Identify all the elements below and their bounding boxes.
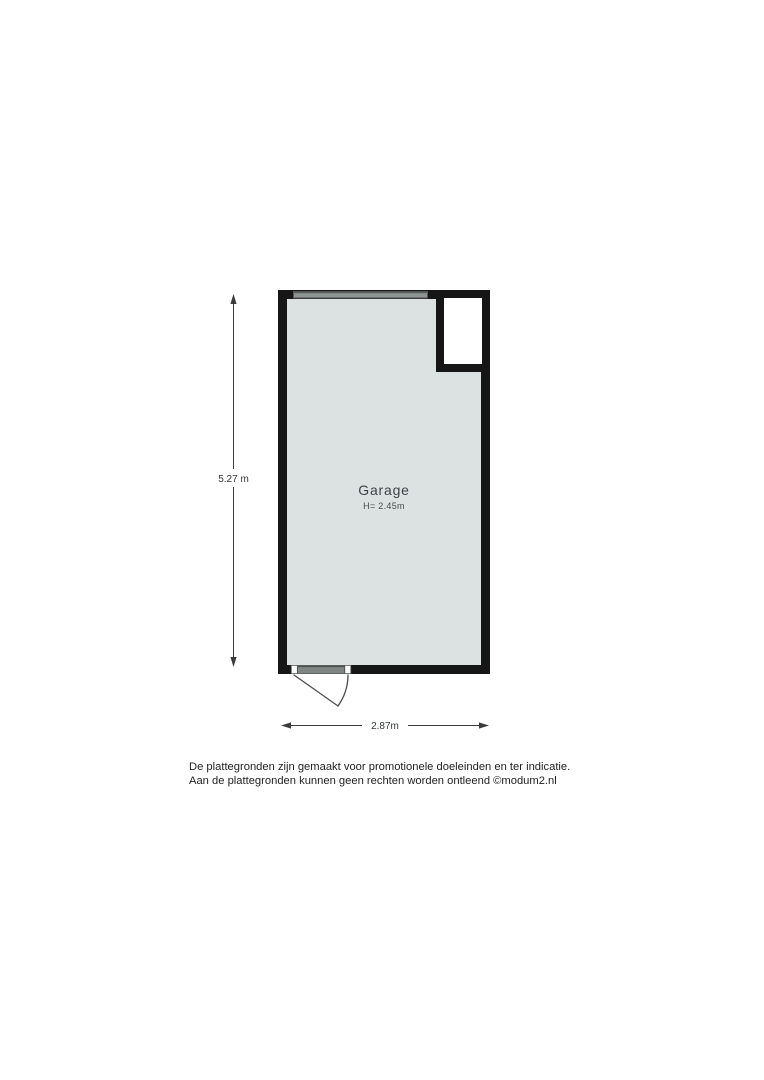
disclaimer-text: De plattegronden zijn gemaakt voor promo… (189, 761, 570, 787)
dimension-horizontal: 2.87m (281, 717, 489, 734)
arrow-down-icon (230, 657, 236, 667)
room-name-label: Garage (358, 482, 410, 498)
door-leaf-edge (298, 666, 345, 668)
dimension-vertical: 5.27 m (212, 294, 255, 667)
door-swing-leaf-line (294, 675, 338, 706)
floorplan-canvas: 5.27 m 2.87m Garage H= 2.45m De plattegr… (0, 0, 764, 1080)
wall-left (278, 290, 287, 674)
niche-interior (444, 298, 482, 364)
dimension-horizontal-label: 2.87m (371, 721, 399, 732)
door-jamb-right (345, 666, 351, 674)
door-jamb-left (291, 666, 297, 674)
room-labels: Garage H= 2.45m (358, 482, 410, 511)
disclaimer-line-2: Aan de plattegronden kunnen geen rechten… (189, 775, 557, 787)
dimension-vertical-label: 5.27 m (218, 474, 249, 485)
disclaimer-line-1: De plattegronden zijn gemaakt voor promo… (189, 761, 570, 773)
arrow-right-icon (479, 722, 489, 728)
arrow-left-icon (281, 722, 291, 728)
floorplan-page: 5.27 m 2.87m Garage H= 2.45m De plattegr… (0, 0, 764, 1080)
room-height-label: H= 2.45m (363, 501, 405, 511)
top-right-niche (436, 290, 490, 372)
garage-door-top-edge (294, 292, 428, 294)
door-swing-arc (338, 675, 348, 706)
entry-door (291, 665, 351, 706)
garage-door (294, 292, 428, 299)
arrow-up-icon (230, 294, 236, 304)
